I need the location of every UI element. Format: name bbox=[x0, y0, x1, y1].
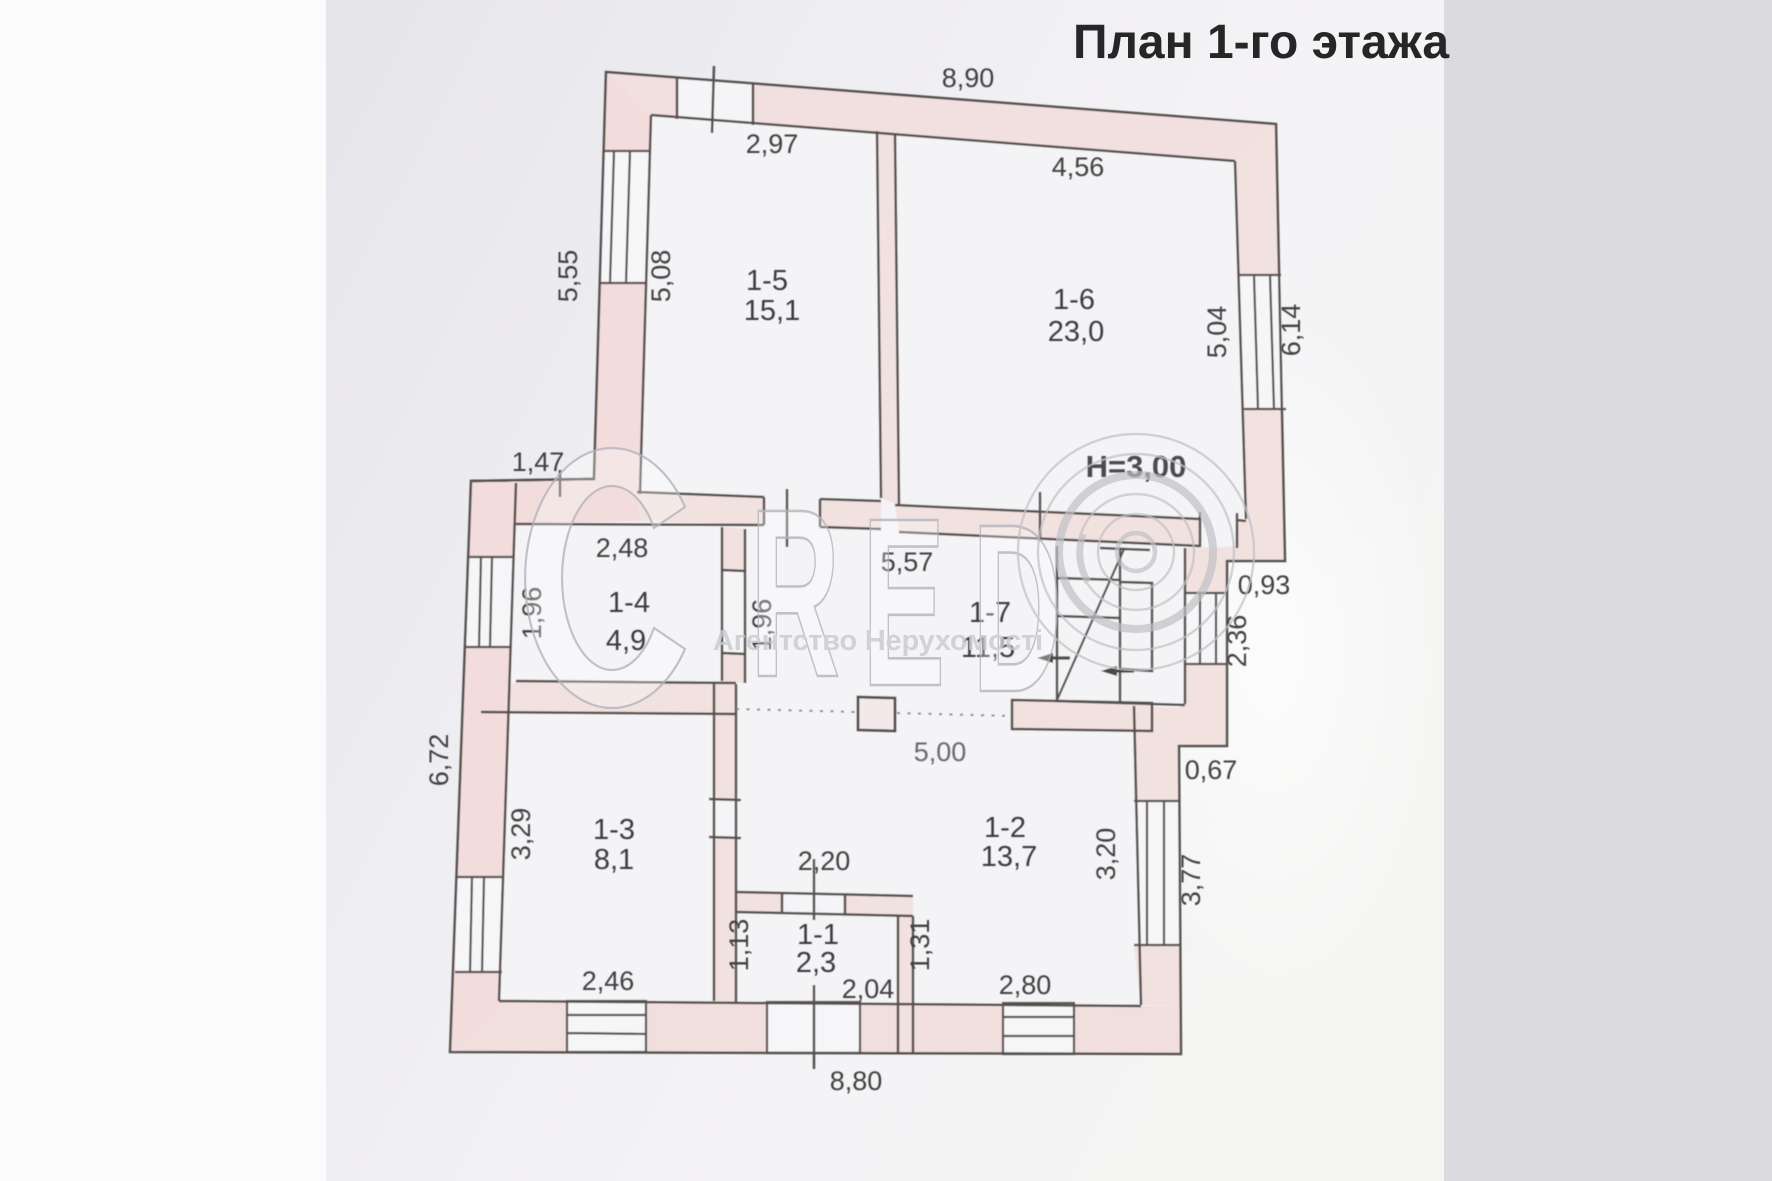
svg-text:5,00: 5,00 bbox=[914, 737, 967, 767]
svg-text:4,9: 4,9 bbox=[606, 625, 646, 657]
svg-text:0,67: 0,67 bbox=[1185, 755, 1238, 785]
svg-text:2,36: 2,36 bbox=[1222, 615, 1252, 668]
svg-text:1-3: 1-3 bbox=[593, 814, 635, 846]
svg-text:6,14: 6,14 bbox=[1276, 304, 1306, 357]
svg-text:2,97: 2,97 bbox=[746, 129, 799, 159]
svg-text:8,90: 8,90 bbox=[942, 63, 995, 93]
svg-text:2,20: 2,20 bbox=[798, 846, 851, 876]
svg-text:1-2: 1-2 bbox=[984, 812, 1026, 844]
svg-text:1,47: 1,47 bbox=[512, 447, 565, 477]
svg-text:15,1: 15,1 bbox=[744, 295, 800, 327]
svg-text:1-6: 1-6 bbox=[1053, 284, 1095, 316]
svg-text:5,08: 5,08 bbox=[646, 250, 676, 303]
svg-text:3,77: 3,77 bbox=[1176, 854, 1206, 907]
svg-text:8,1: 8,1 bbox=[594, 844, 634, 876]
svg-text:8,80: 8,80 bbox=[830, 1066, 883, 1096]
svg-text:1,31: 1,31 bbox=[905, 919, 935, 972]
svg-text:5,55: 5,55 bbox=[553, 250, 583, 303]
svg-text:13,7: 13,7 bbox=[981, 841, 1037, 873]
svg-text:1,13: 1,13 bbox=[724, 919, 754, 972]
svg-text:6,72: 6,72 bbox=[424, 734, 454, 787]
svg-text:2,3: 2,3 bbox=[796, 947, 836, 979]
svg-text:E: E bbox=[862, 468, 945, 737]
svg-text:1-5: 1-5 bbox=[746, 265, 788, 297]
svg-text:D: D bbox=[972, 474, 1062, 743]
svg-text:5,04: 5,04 bbox=[1202, 306, 1232, 359]
svg-text:Агентство Нерухомості: Агентство Нерухомості bbox=[713, 625, 1045, 657]
svg-text:23,0: 23,0 bbox=[1048, 316, 1104, 348]
svg-text:2,46: 2,46 bbox=[582, 966, 635, 996]
svg-text:2,80: 2,80 bbox=[999, 970, 1052, 1000]
svg-text:3,29: 3,29 bbox=[506, 808, 536, 861]
svg-text:R: R bbox=[750, 459, 840, 728]
svg-text:План 1-го этажа: План 1-го этажа bbox=[1073, 16, 1449, 69]
svg-text:2,04: 2,04 bbox=[842, 974, 895, 1004]
svg-text:4,56: 4,56 bbox=[1052, 152, 1105, 182]
svg-text:1-4: 1-4 bbox=[608, 587, 650, 619]
svg-text:3,20: 3,20 bbox=[1091, 828, 1121, 881]
svg-text:2,48: 2,48 bbox=[596, 533, 649, 563]
